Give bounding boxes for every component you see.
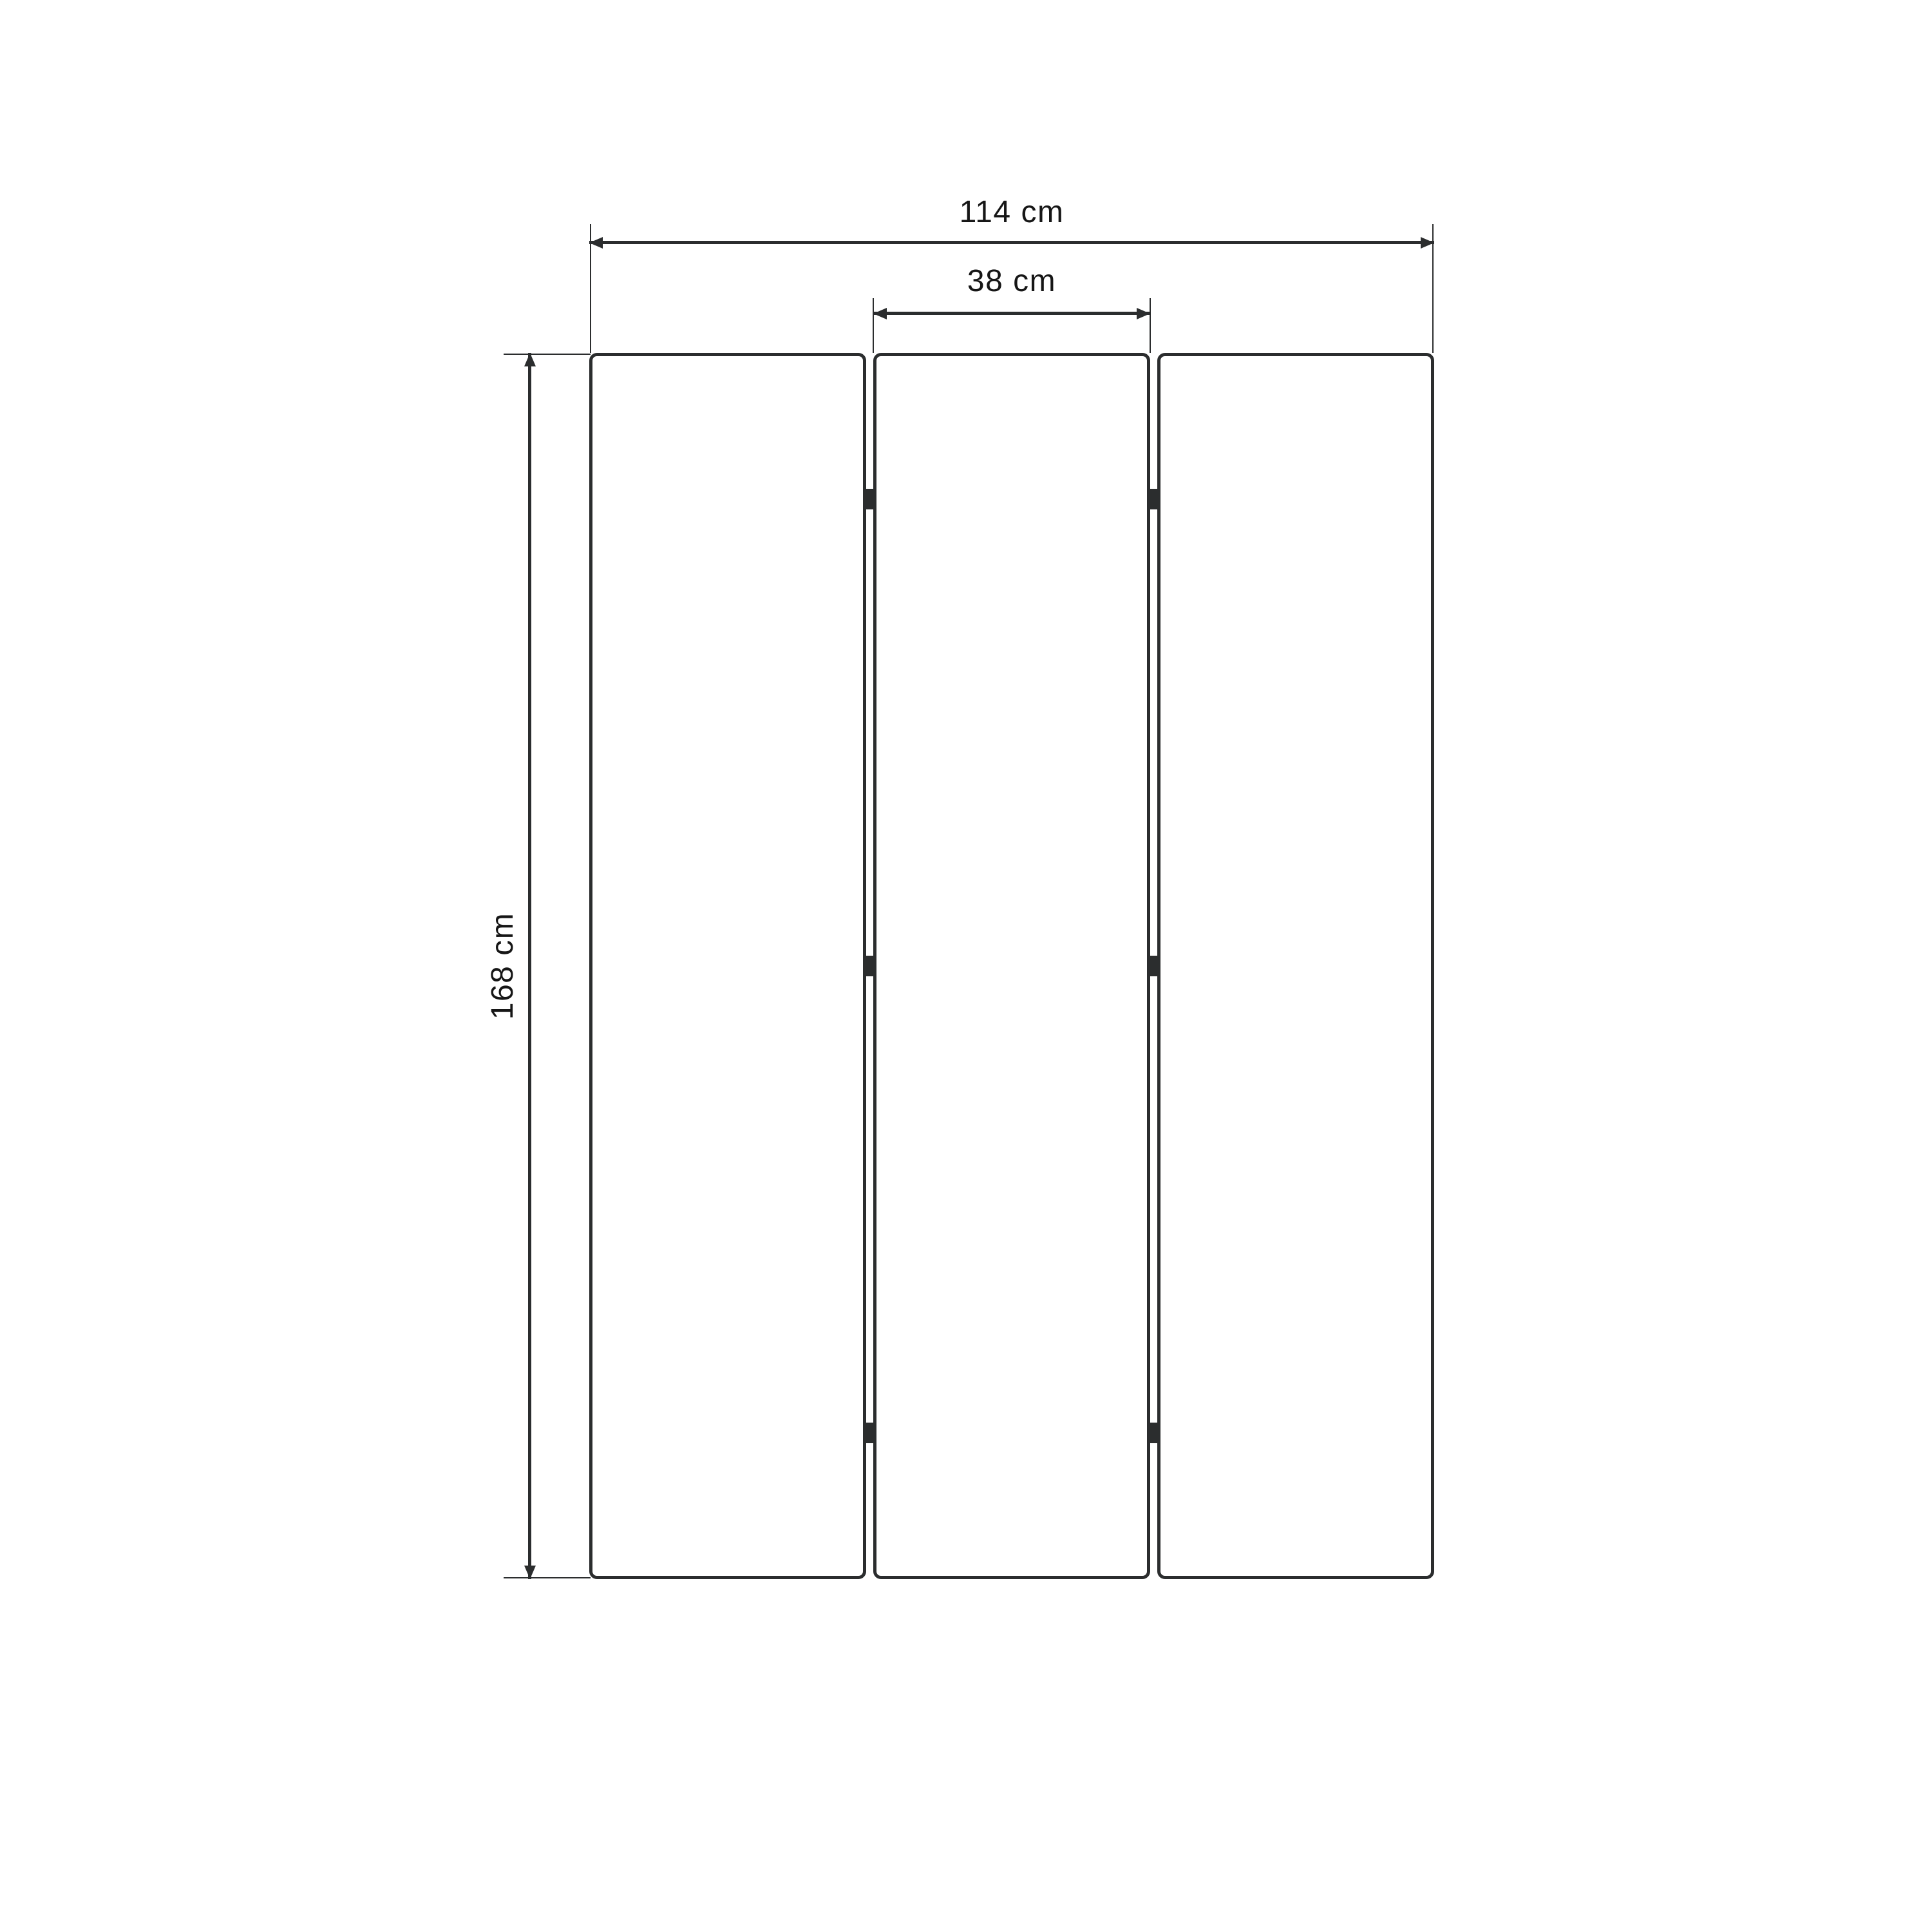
panel-width-extension-line-left [873,298,874,353]
total-width-dimension-line [589,241,1434,244]
arrowhead-down-icon [524,1566,536,1579]
hinge-left-gap-top [866,489,874,509]
arrowhead-up-icon [524,353,536,366]
panel-width-label: 38 cm [873,263,1150,299]
arrowhead-right-icon [1137,308,1150,319]
hinge-right-gap-middle [1150,956,1158,976]
height-label: 168 cm [485,869,521,1063]
arrowhead-left-icon [873,308,887,319]
hinge-right-gap-bottom [1150,1423,1158,1443]
panel-center [873,353,1150,1579]
dimension-diagram-canvas: 114 cm 38 cm 168 cm [0,0,1932,1932]
panel-left [589,353,866,1579]
hinge-right-gap-top [1150,489,1158,509]
height-extension-line-bottom [504,1577,591,1578]
total-width-label: 114 cm [589,194,1434,231]
panel-right [1157,353,1434,1579]
panel-width-extension-line-right [1150,298,1151,353]
arrowhead-left-icon [589,237,603,249]
height-extension-line-top [504,354,591,355]
height-dimension-line [528,353,531,1579]
hinge-left-gap-middle [866,956,874,976]
hinge-left-gap-bottom [866,1423,874,1443]
arrowhead-right-icon [1421,237,1434,249]
panel-width-dimension-line [873,312,1150,315]
